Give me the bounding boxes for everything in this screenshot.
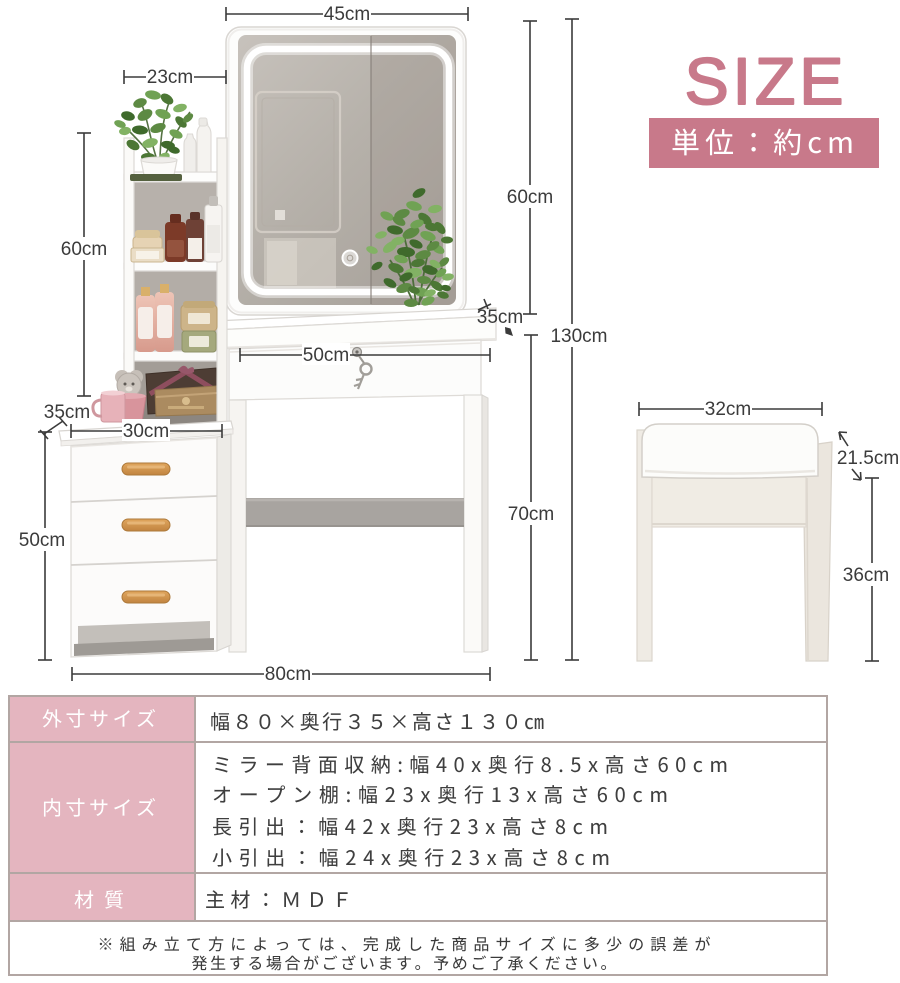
svg-text:SIZE: SIZE — [685, 44, 848, 118]
svg-text:35cm: 35cm — [44, 402, 90, 423]
svg-text:36cm: 36cm — [843, 565, 889, 586]
svg-text:30cm: 30cm — [123, 421, 169, 442]
svg-text:80cm: 80cm — [265, 664, 311, 685]
svg-text:70cm: 70cm — [508, 504, 554, 525]
svg-text:50cm: 50cm — [19, 530, 65, 551]
svg-text:45cm: 45cm — [324, 4, 370, 25]
svg-text:35cm: 35cm — [477, 307, 523, 328]
svg-text:60cm: 60cm — [507, 187, 553, 208]
svg-text:50cm: 50cm — [303, 345, 349, 366]
svg-text:60cm: 60cm — [61, 239, 107, 260]
svg-text:32cm: 32cm — [705, 399, 751, 420]
svg-text:23cm: 23cm — [147, 67, 193, 88]
svg-text:21.5cm: 21.5cm — [837, 448, 899, 469]
svg-text:130cm: 130cm — [550, 326, 607, 347]
